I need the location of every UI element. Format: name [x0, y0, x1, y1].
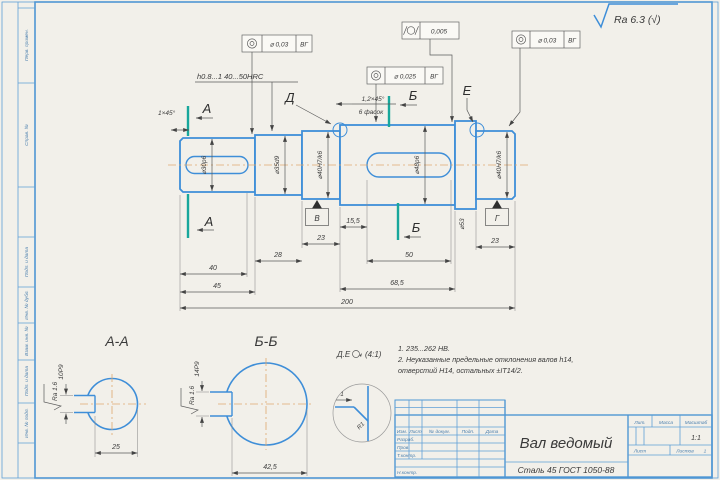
section-aa-keyway-label: 10P9	[58, 364, 65, 380]
dia-30-label: ⌀30p6	[201, 155, 208, 174]
detail-dim-1: 1	[340, 392, 343, 398]
note-line-1: 1. 235...262 НВ.	[398, 344, 450, 353]
dia-40-left-label: ⌀40H7/k6	[317, 151, 324, 180]
detail-de-scale: (4:1)	[365, 350, 382, 359]
cut-label-a-bottom: А	[204, 214, 214, 229]
dim-40: 40	[209, 265, 217, 272]
dim-15-5: 15,5	[346, 218, 360, 225]
section-aa-title: А-А	[104, 333, 128, 349]
tb-col-list: Лист	[408, 429, 421, 435]
section-aa-ra-text: Ra 1.6	[52, 381, 59, 401]
frame-col-sprav: Справ. №	[24, 124, 30, 146]
chamfer-right-text2: 6 фасок	[359, 109, 384, 116]
hardness-text: h0.8...1 40...50HRC	[197, 72, 264, 81]
section-bb-width: 42,5	[263, 464, 277, 471]
frame-col-inv-dubl: Инв. № дубл.	[24, 290, 30, 320]
surface-finish-text: Ra 6.3 (√)	[614, 14, 661, 26]
dia-48-label: ⌀48p6	[414, 155, 421, 174]
section-bb-title: Б-Б	[255, 333, 278, 349]
tb-col-izm: Изм.	[397, 429, 407, 435]
tb-masshtab: Масштаб	[685, 420, 708, 426]
frame-col-perv-primen: Перв. примен.	[24, 29, 30, 61]
datum-v-label: В	[314, 214, 320, 223]
tb-massa: Масса	[659, 420, 674, 426]
section-bb-ra-text: Ra 1.6	[189, 385, 196, 405]
dim-23-right: 23	[490, 238, 499, 245]
tolerance-3-value: ⌀ 0,025	[394, 74, 416, 81]
tb-col-dokum: № докум.	[429, 429, 450, 435]
dia-40-right-label: ⌀40H7/k6	[496, 151, 503, 180]
detail-de-label: Д.Е	[336, 350, 351, 359]
dim-23-left: 23	[316, 235, 325, 242]
dia-53-label: ⌀53	[459, 218, 466, 230]
cut-label-b-top: Б	[409, 88, 418, 103]
tb-row-nkontr: Н.контр.	[397, 470, 417, 476]
datum-g-label: Г	[495, 214, 500, 223]
tb-row-prov: Пров.	[397, 445, 410, 451]
tb-lit: Лит.	[633, 420, 645, 426]
cut-label-a-top: А	[202, 101, 212, 116]
chamfer-left-text: 1×45°	[158, 109, 176, 117]
tb-scale-value: 1:1	[691, 435, 701, 442]
tb-listov-value: 1	[704, 449, 707, 455]
detail-label-e: Е	[463, 83, 472, 98]
part-name: Вал ведомый	[520, 435, 613, 452]
tolerance-4-datum: ВГ	[568, 38, 576, 45]
note-line-2: 2. Неуказанные предельные отклонения вал…	[397, 355, 573, 364]
frame-col-podp-data-2: Подп. и дата	[24, 366, 30, 396]
tolerance-4-value: ⌀ 0,03	[538, 38, 557, 45]
paper-sheet	[0, 0, 720, 480]
dim-68-5: 68,5	[390, 280, 404, 287]
dim-28: 28	[273, 252, 282, 259]
tb-row-tkontr: Т.контр.	[397, 453, 416, 459]
frame-col-vzam-inv: Взам. инв. №	[24, 326, 30, 356]
tb-list: Лист	[633, 449, 646, 455]
tolerance-1-datum: ВГ	[300, 42, 308, 49]
section-bb-keyway-label: 14P9	[194, 361, 201, 377]
drawing-canvas: Перв. примен. Справ. № Подп. и дата Инв.…	[0, 0, 720, 480]
dim-45: 45	[213, 283, 221, 290]
dim-200: 200	[340, 299, 353, 306]
dia-35-label: ⌀35d9	[274, 155, 281, 174]
tolerance-3-datum: ВГ	[430, 74, 438, 81]
tolerance-1-value: ⌀ 0,03	[270, 42, 289, 49]
section-aa-width: 25	[111, 444, 120, 451]
tb-row-razrab: Разраб.	[397, 437, 414, 443]
dim-50: 50	[405, 252, 413, 259]
note-line-3: отверстий Н14, остальных ±IT14/2.	[398, 366, 523, 375]
frame-col-podp-data-1: Подп. и дата	[24, 247, 30, 277]
tb-col-podp: Подп.	[462, 429, 475, 435]
tolerance-2-value: 0,005	[431, 29, 448, 36]
detail-label-d: Д	[283, 90, 294, 105]
cut-label-b-bottom: Б	[412, 220, 421, 235]
frame-col-inv-podl: Инв. № подл.	[24, 408, 30, 438]
tb-listov: Листов	[675, 449, 694, 455]
tb-col-data: Дата	[485, 429, 499, 435]
chamfer-right-text: 1,2×45°	[362, 95, 385, 103]
part-material: Сталь 45 ГОСТ 1050-88	[518, 465, 615, 475]
